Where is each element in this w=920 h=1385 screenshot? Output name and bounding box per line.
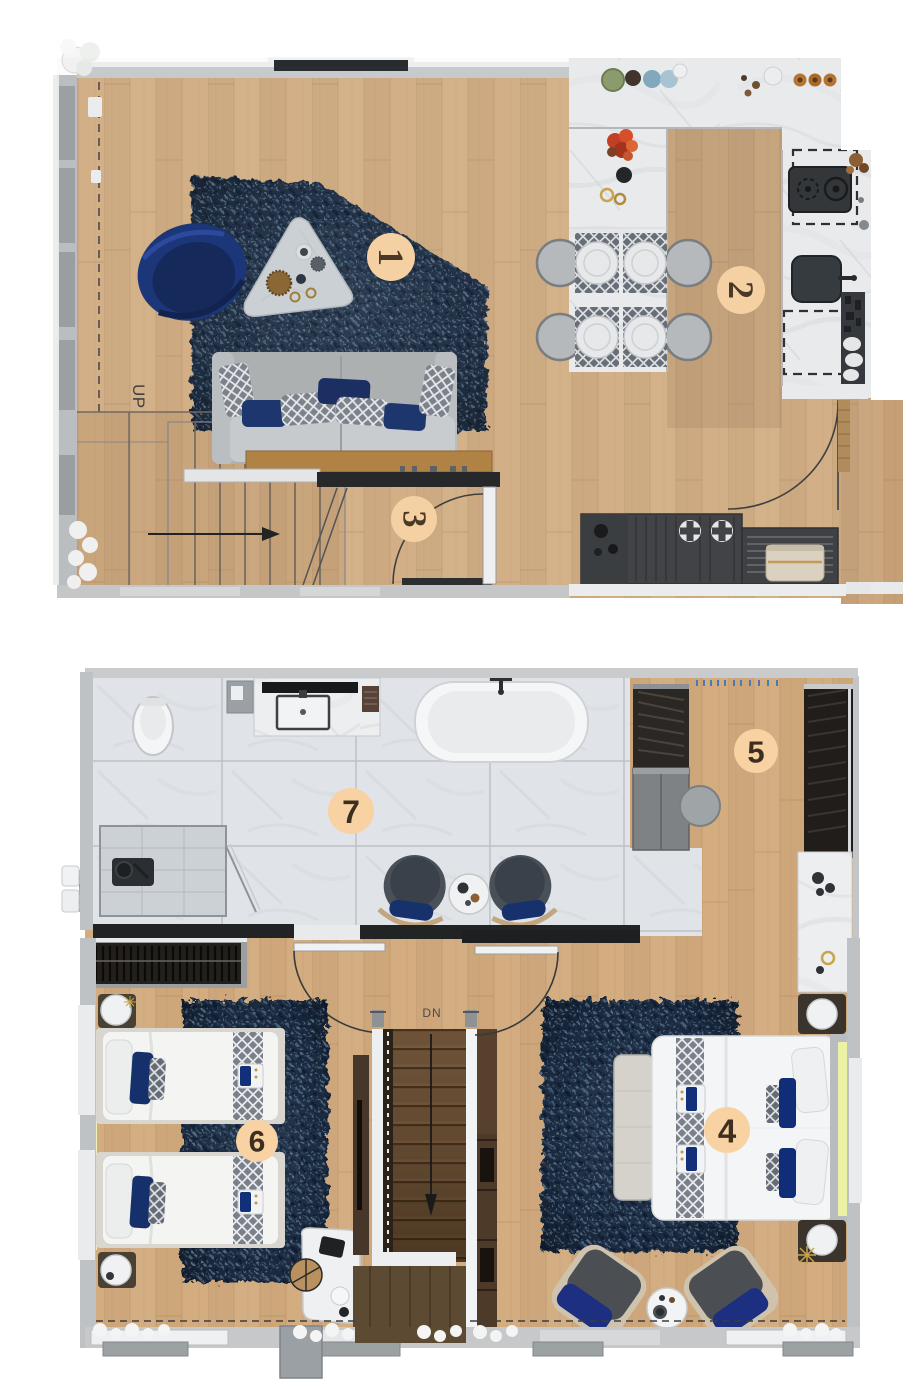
svg-text:5: 5 xyxy=(747,735,764,770)
svg-text:DN: DN xyxy=(422,1006,441,1020)
svg-text:6: 6 xyxy=(249,1126,266,1159)
svg-text:4: 4 xyxy=(718,1113,737,1150)
svg-text:7: 7 xyxy=(342,794,360,830)
